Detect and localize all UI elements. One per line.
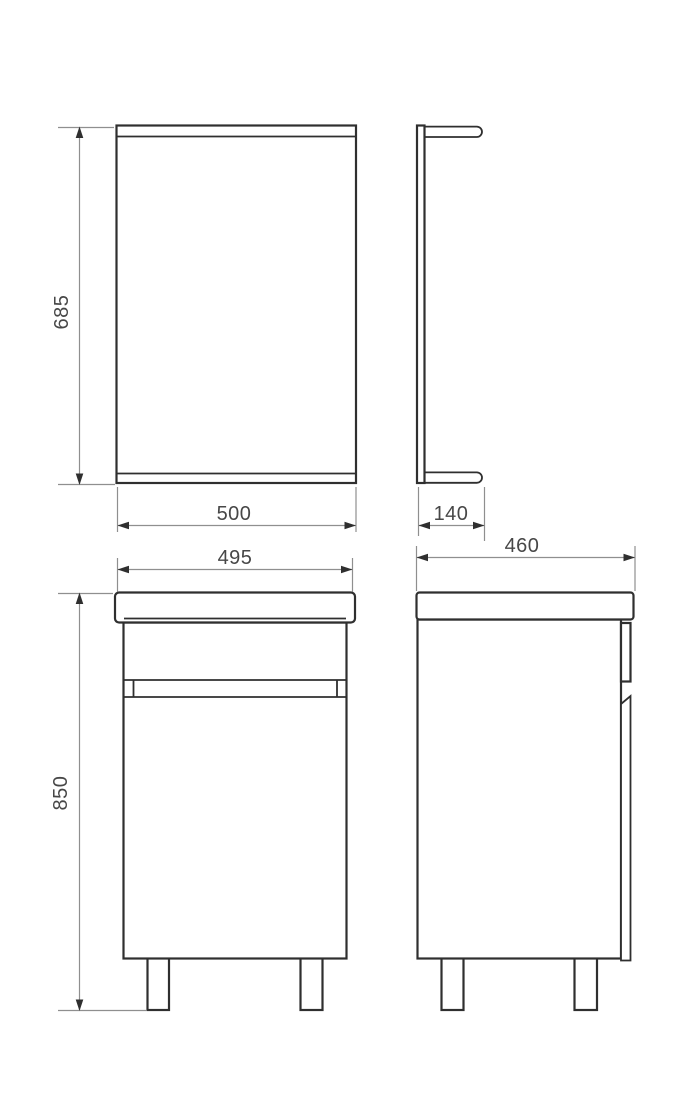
vanity-side-leg-right (575, 956, 598, 1010)
technical-drawing (0, 0, 700, 1100)
vanity-front-leg-right (301, 956, 323, 1010)
vanity-side-door-front (621, 696, 631, 961)
vanity-front-body (124, 623, 347, 959)
vanity-width-label: 495 (218, 548, 253, 568)
vanity-depth-label: 460 (505, 536, 540, 556)
vanity-height-label: 850 (51, 776, 71, 811)
vanity-side-body (418, 620, 622, 959)
vanity-front-view (115, 593, 355, 1011)
vanity-side-drawer-front (621, 623, 631, 682)
vanity-side-basin (417, 593, 634, 620)
mirror-side-view (417, 126, 482, 484)
mirror-depth-label: 140 (434, 504, 469, 524)
mirror-front-view (117, 126, 357, 484)
vanity-side-leg-left (442, 956, 464, 1010)
vanity-front-leg-left (148, 956, 170, 1010)
mirror-height-label: 685 (52, 295, 72, 330)
mirror-width-label: 500 (217, 504, 252, 524)
vanity-side-view (417, 593, 634, 1011)
drawing-canvas: 685 500 140 495 460 850 (0, 0, 700, 1100)
